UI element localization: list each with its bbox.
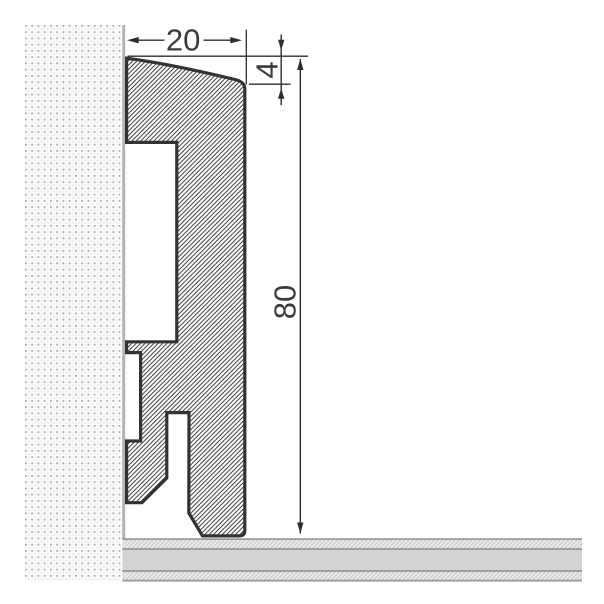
svg-text:4: 4	[250, 61, 285, 78]
svg-text:80: 80	[267, 285, 302, 319]
svg-text:20: 20	[166, 23, 200, 58]
